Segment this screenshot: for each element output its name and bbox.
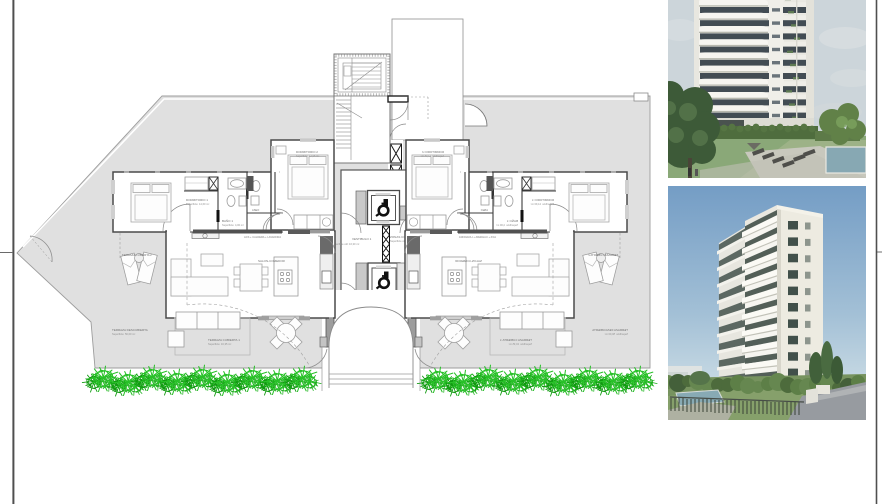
svg-text:DORMITORIO 1: DORMITORIO 1 [186,198,208,202]
svg-text:Superficie: 16,35 m²: Superficie: 16,35 m² [208,342,231,346]
svg-text:VESTIBULO 1: VESTIBULO 1 [352,237,372,241]
svg-text:ACS + CALDERA + LAVADORA: ACS + CALDERA + LAVADORA [244,235,281,239]
svg-text:Superficie util: 16,30 m²: Superficie util: 16,30 m² [332,242,359,246]
svg-text:Superficie: 56,00 m²: Superficie: 56,00 m² [112,332,135,336]
svg-text:SALON-COMEDOR: SALON-COMEDOR [258,259,286,263]
svg-text:ASEO: ASEO [252,208,259,212]
svg-text:TERRAZA DESCUBIERTA: TERRAZA DESCUBIERTA [112,328,148,332]
svg-text:Superficie: 4,00 m²: Superficie: 4,00 m² [222,223,244,227]
svg-text:TERRAZA CUBIERTA 2: TERRAZA CUBIERTA 2 [122,253,152,257]
svg-text:Superficie: 14,60 m²: Superficie: 14,60 m² [186,202,209,206]
svg-text:BAÑO 1: BAÑO 1 [222,218,233,223]
svg-text:TERRAZA CUBIERTA 1: TERRAZA CUBIERTA 1 [208,338,240,342]
svg-text:Superficie: 12,05 m²: Superficie: 12,05 m² [296,154,319,158]
svg-text:DORMITORIO 2: DORMITORIO 2 [296,150,318,154]
